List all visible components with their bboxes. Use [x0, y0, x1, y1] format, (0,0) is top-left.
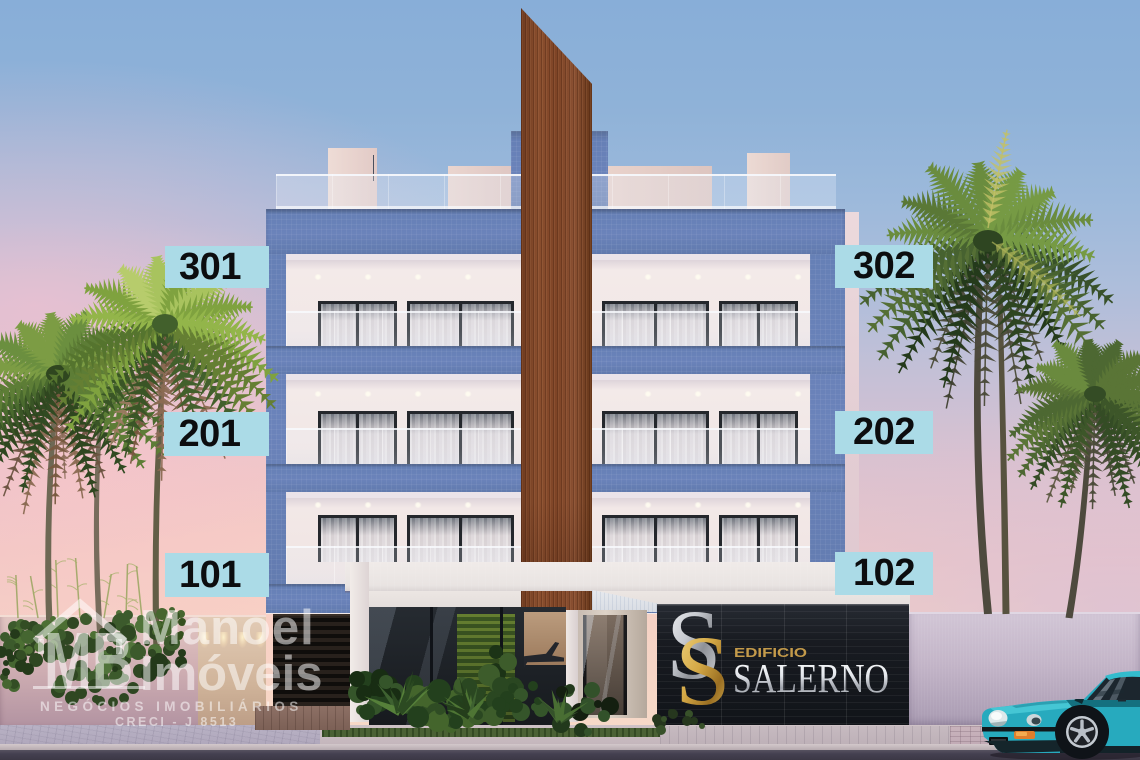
svg-text:MB: MB: [44, 616, 134, 694]
